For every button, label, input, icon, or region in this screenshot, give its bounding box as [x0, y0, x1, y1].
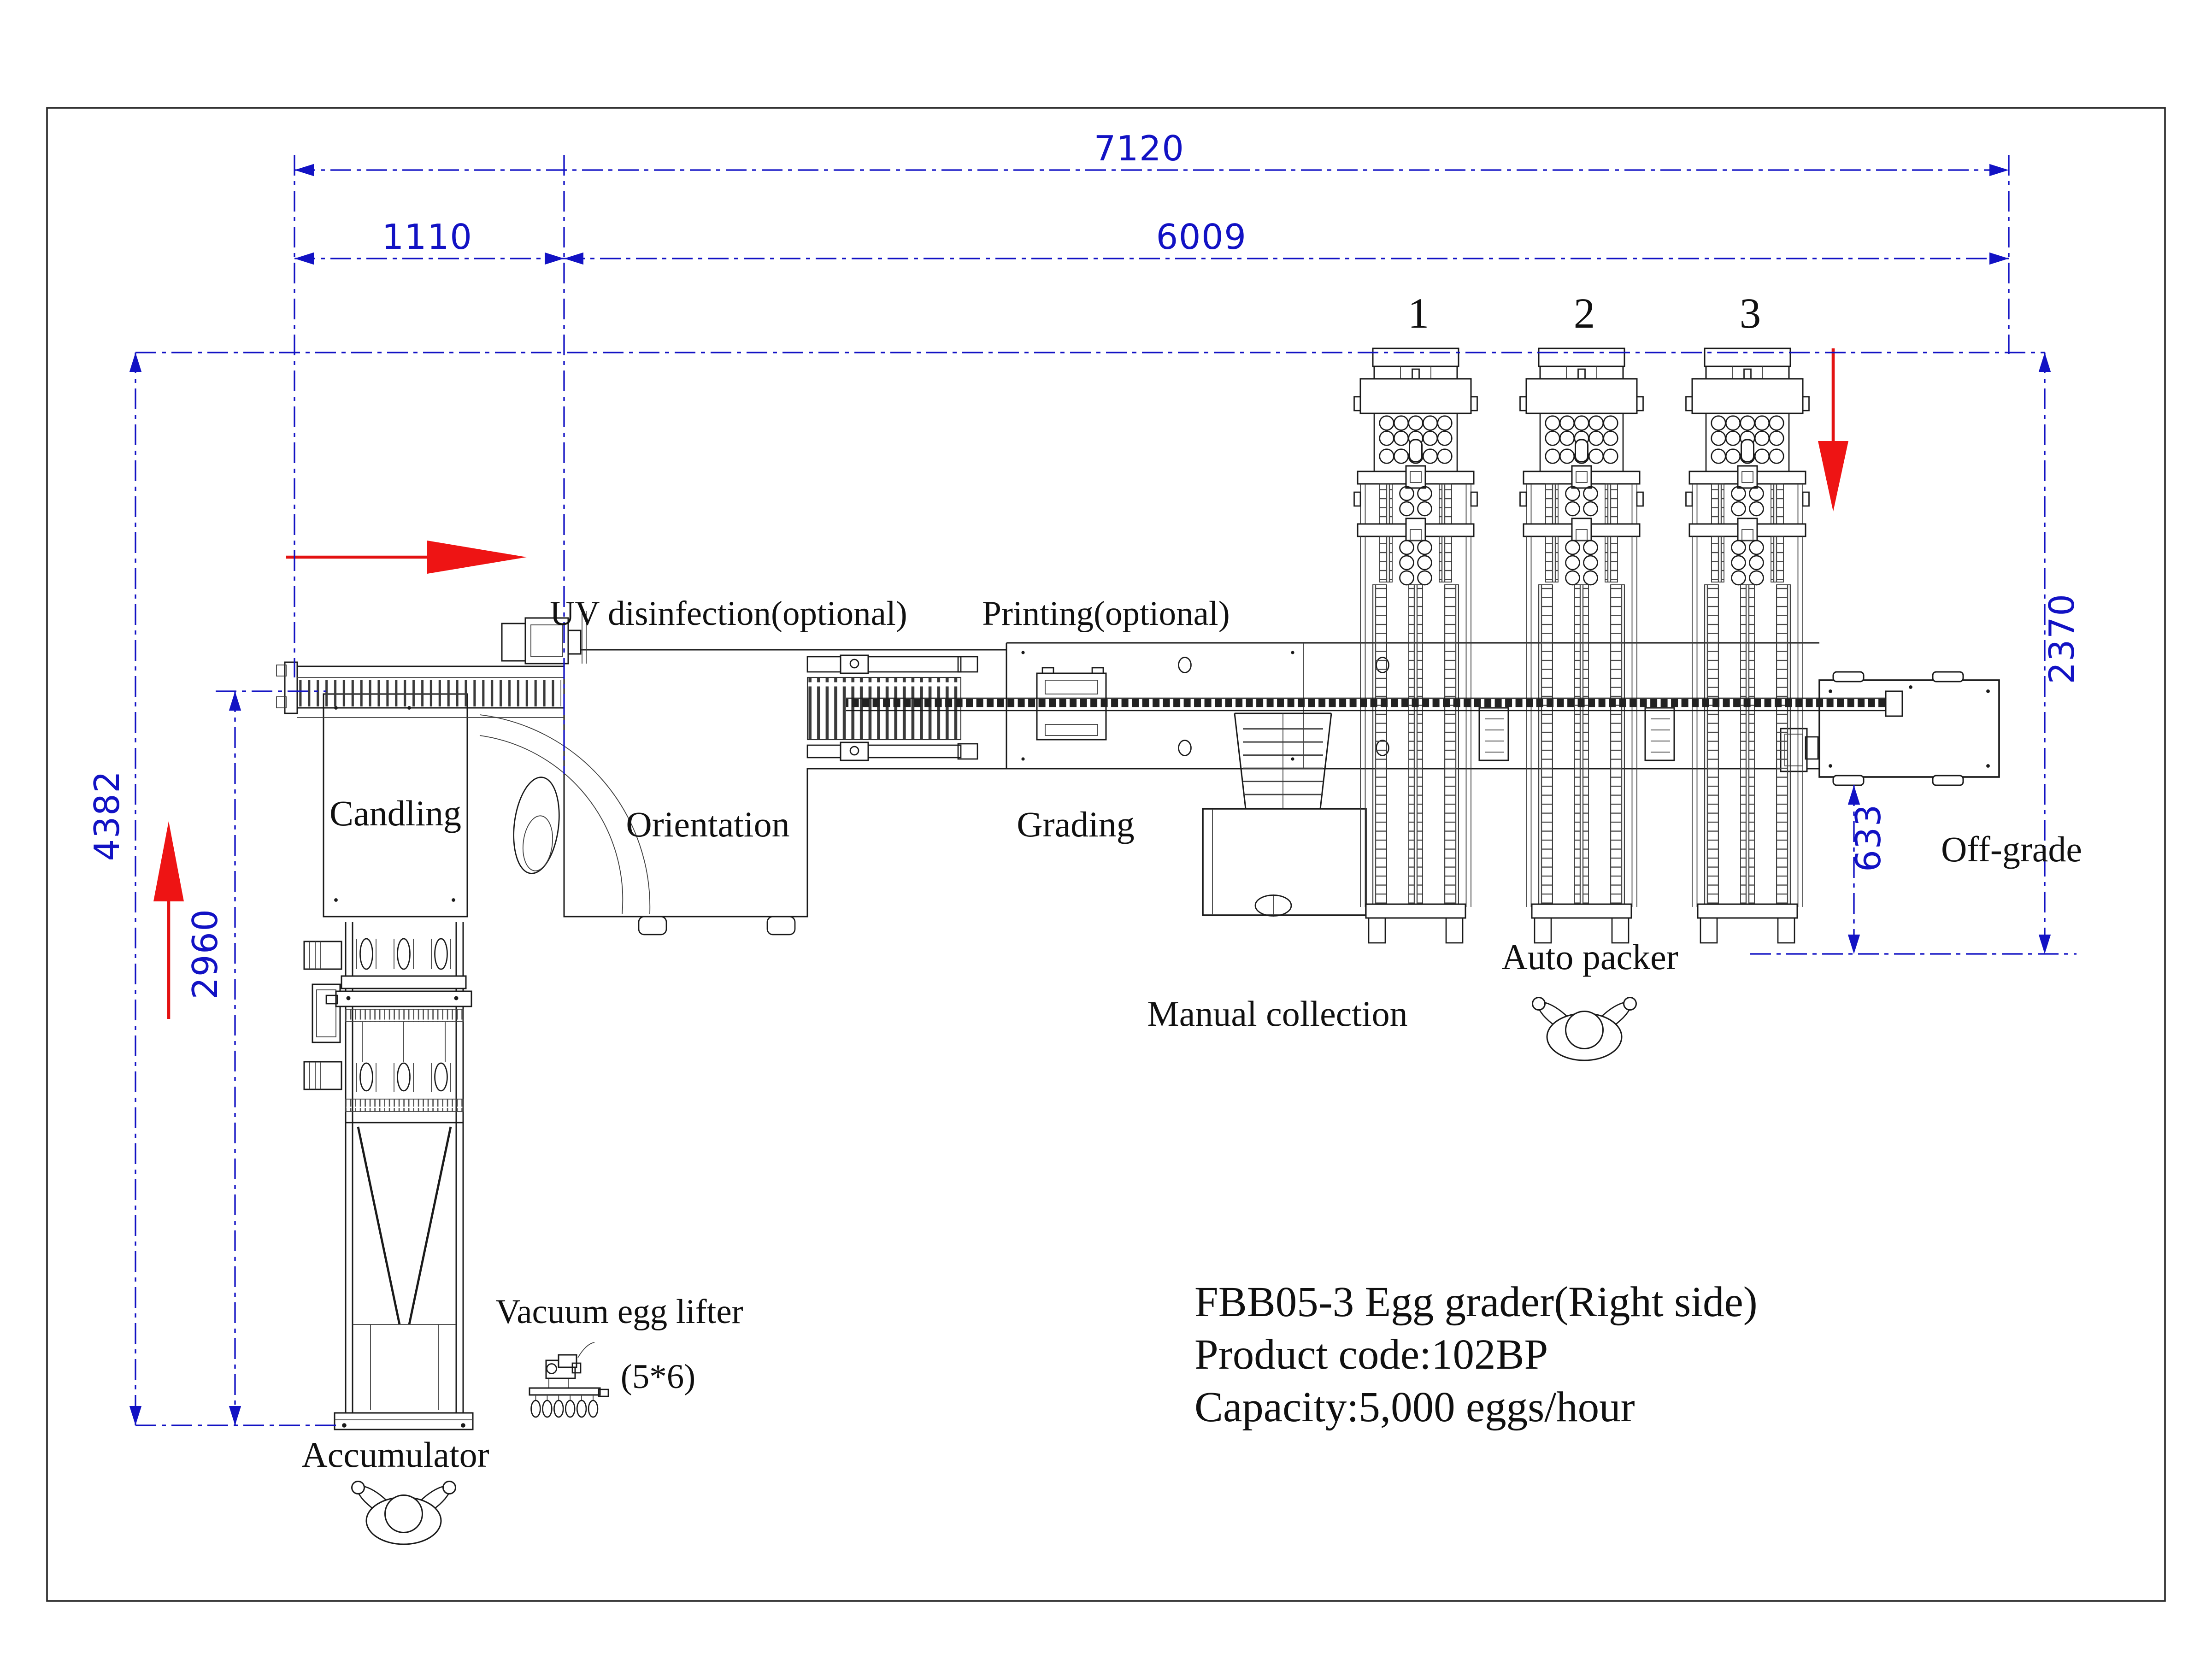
dim-1110-value: 1110	[382, 217, 473, 257]
label-auto-packer: Auto packer	[1501, 937, 1678, 977]
dim-4382-value: 4382	[87, 771, 127, 861]
label-candling: Candling	[329, 793, 461, 833]
product-capacity: Capacity:5,000 eggs/hour	[1194, 1383, 1635, 1431]
label-orientation: Orientation	[626, 804, 789, 844]
dim-2960-value: 2960	[185, 909, 225, 1000]
product-code: Product code:102BP	[1194, 1331, 1548, 1378]
dim-2370-value: 2370	[2041, 594, 2082, 684]
label-manual-collection: Manual collection	[1147, 994, 1407, 1034]
label-off-grade: Off-grade	[1941, 829, 2082, 869]
egg-grader-layout-drawing: 7120 1110 6009 4382 2960	[0, 0, 2212, 1659]
lane-number-1: 1	[1408, 290, 1430, 337]
dim-7120-value: 7120	[1094, 128, 1185, 169]
dim-633-value: 633	[1848, 804, 1888, 872]
off-grade-outfeed	[1819, 672, 1999, 785]
label-grading: Grading	[1017, 804, 1135, 844]
dim-6009-value: 6009	[1156, 217, 1247, 257]
label-accumulator: Accumulator	[301, 1435, 489, 1475]
label-printing: Printing(optional)	[982, 594, 1230, 633]
label-vacuum-egg-lifter: Vacuum egg lifter	[495, 1293, 743, 1331]
lane-number-2: 2	[1574, 290, 1595, 337]
product-title: FBB05-3 Egg grader(Right side)	[1194, 1278, 1758, 1326]
label-lifter-spec: (5*6)	[621, 1358, 695, 1396]
lane-number-3: 3	[1740, 290, 1761, 337]
label-uv-disinfection: UV disinfection(optional)	[550, 594, 907, 633]
